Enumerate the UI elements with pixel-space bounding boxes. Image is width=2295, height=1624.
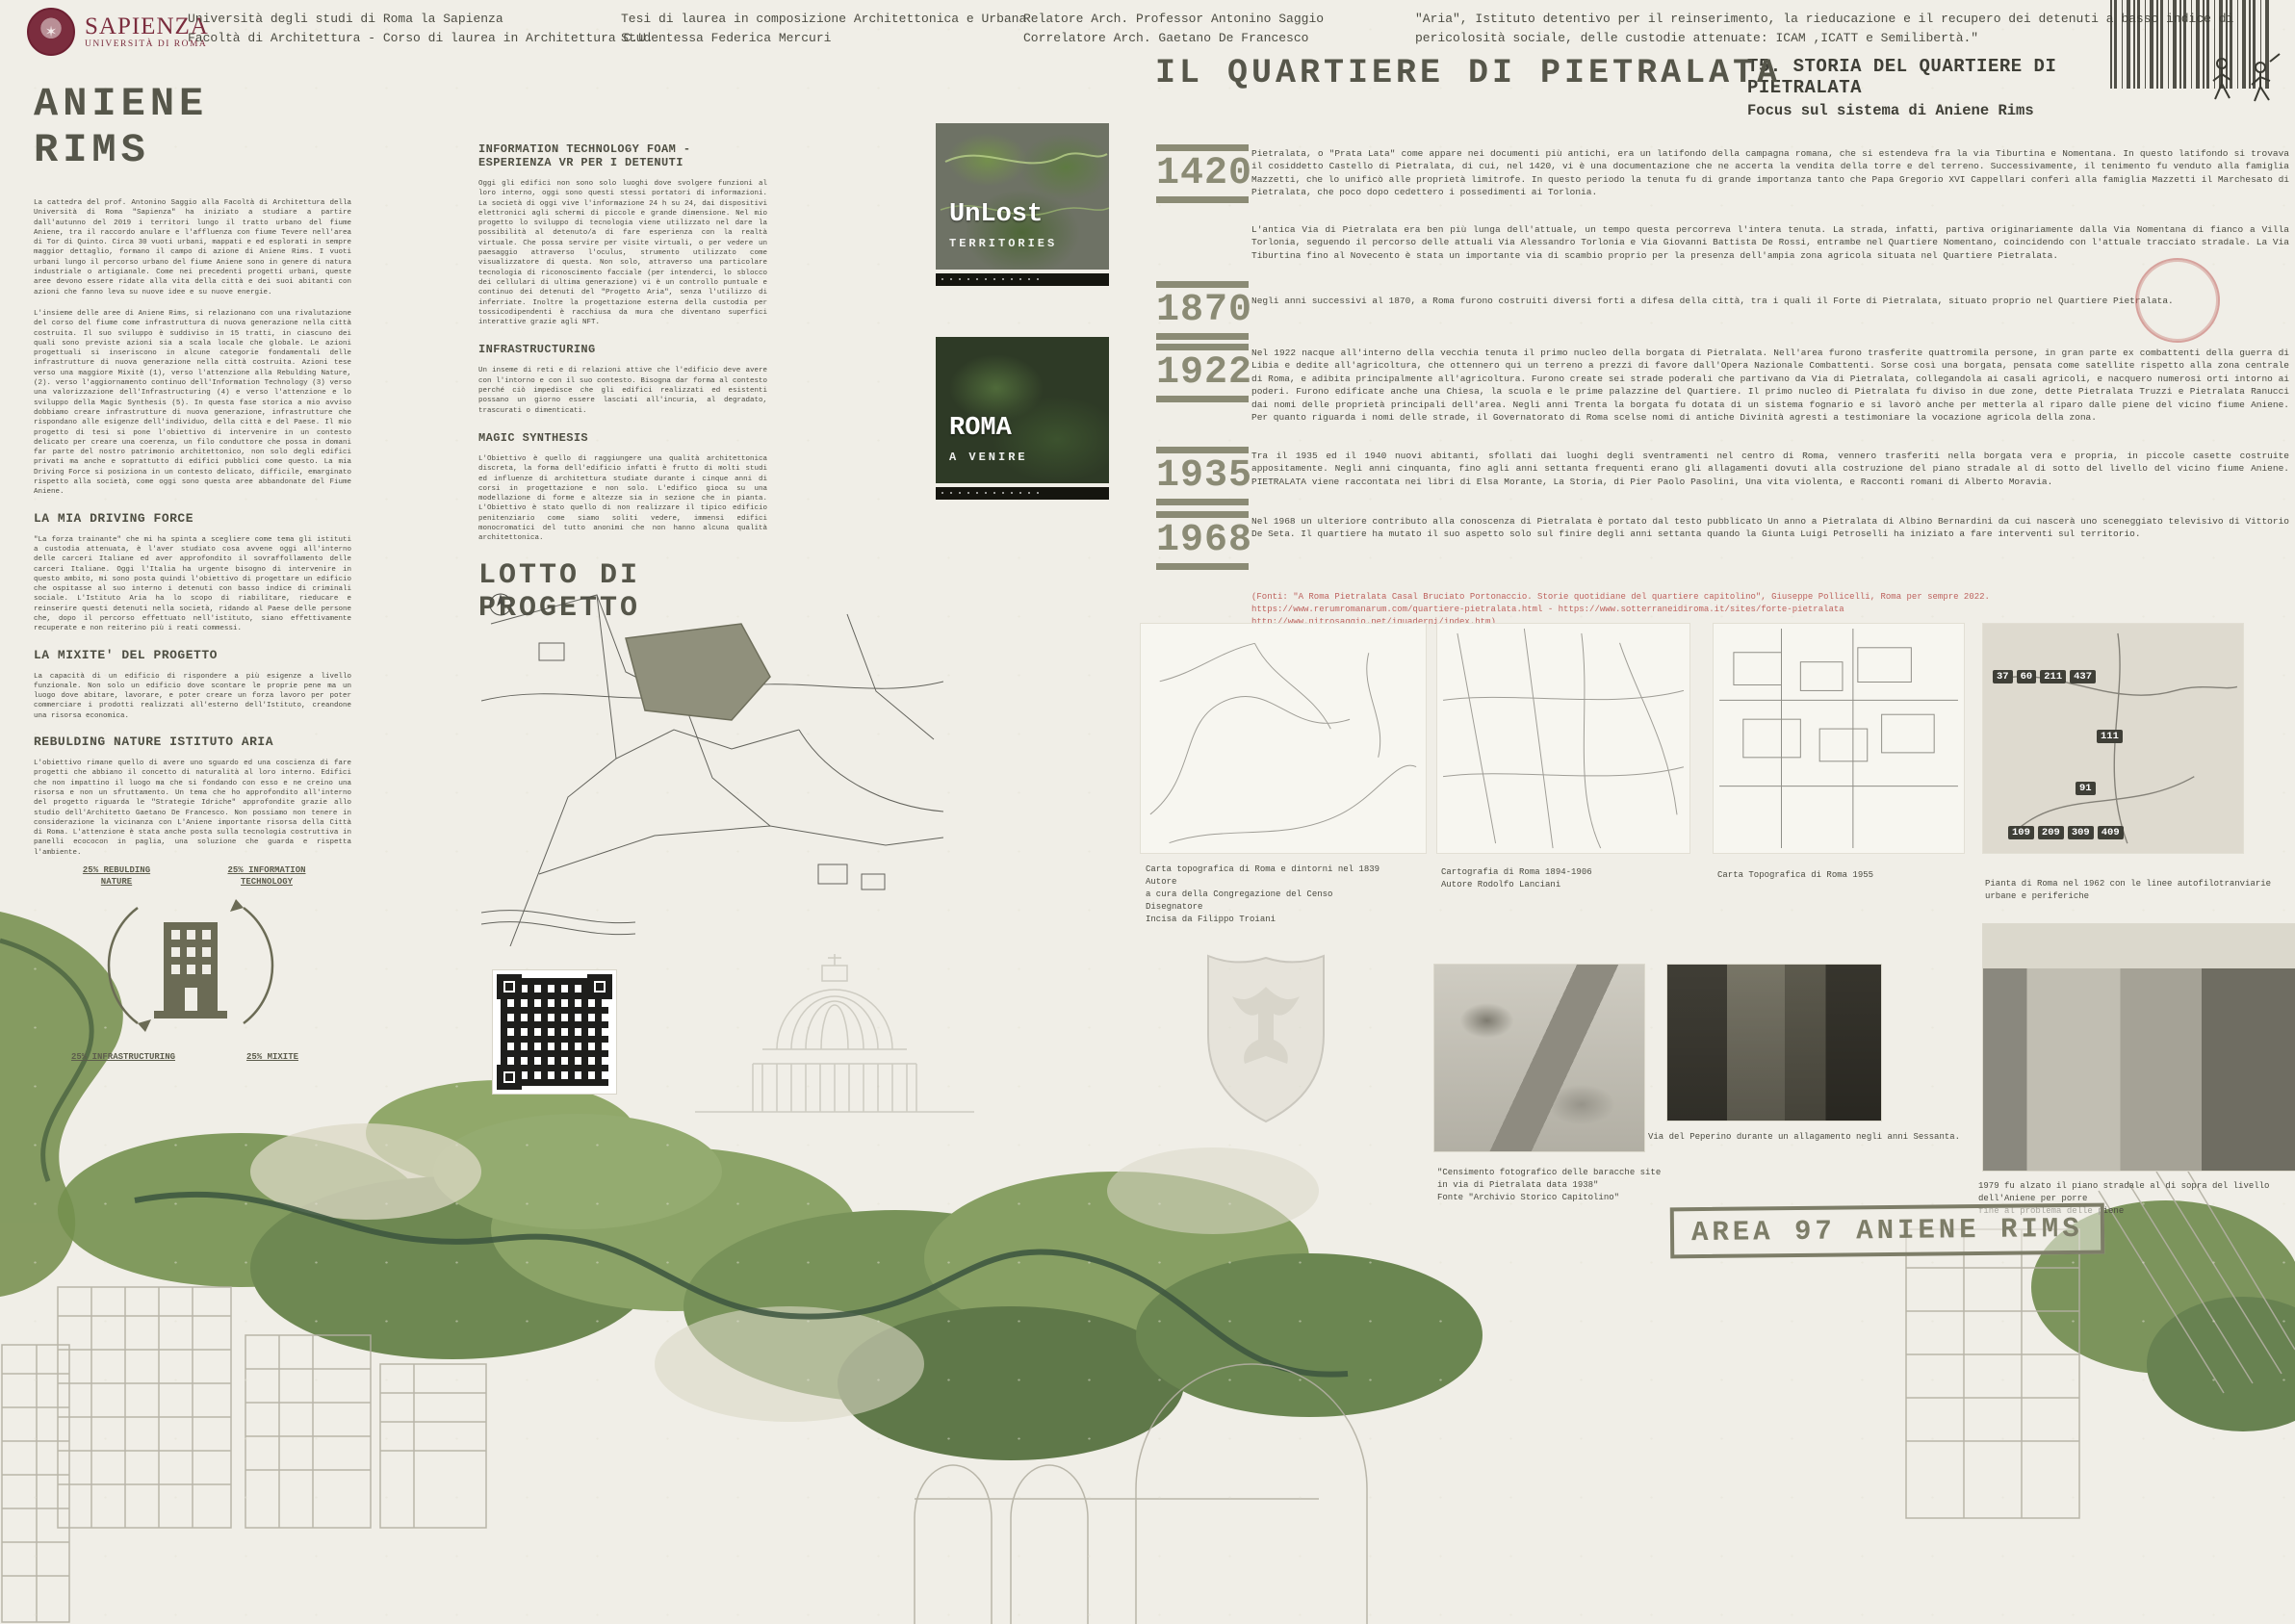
photo-caption-baracche: "Censimento fotografico delle baracche s… <box>1437 1167 1726 1204</box>
year-stamp-1968: 1968 <box>1156 511 1249 570</box>
route-badge: 111 <box>2097 730 2123 743</box>
red-round-stamp <box>2127 250 2228 350</box>
timeline-text-1968: Nel 1968 un ulteriore contributo alla co… <box>1251 515 2289 541</box>
faculty-line: Facoltà di Architettura - Corso di laure… <box>188 29 654 48</box>
map-1839 <box>1141 624 1426 853</box>
unlost-territories-card: UnLost TERRITORIES <box>936 123 1109 270</box>
timeline-text-1922: Nel 1922 nacque all'interno della vecchi… <box>1251 347 2289 424</box>
student-line: Studentessa Federica Mercuri <box>621 29 1026 48</box>
map-caption-1962: Pianta di Roma nel 1962 con le linee aut… <box>1985 878 2293 903</box>
photo-street-1979 <box>1983 924 2295 1171</box>
sapienza-seal-icon: ✶ <box>27 8 75 56</box>
left-column: ANIENE RIMS La cattedra del prof. Antoni… <box>34 81 351 869</box>
photo-via-del-peperino-flood <box>1667 965 1881 1121</box>
map-1894-1906 <box>1437 624 1689 853</box>
route-badge: 209 <box>2038 826 2064 839</box>
thesis-board: ✶ SAPIENZA UNIVERSITÀ DI ROMA Università… <box>0 0 2295 1624</box>
header-thesis-block: Tesi di laurea in composizione Architett… <box>621 10 1026 48</box>
unlost-subtitle: TERRITORIES <box>949 237 1057 250</box>
sapienza-logo: ✶ SAPIENZA UNIVERSITÀ DI ROMA <box>27 8 209 56</box>
sketched-figures-icon <box>2205 50 2291 106</box>
year-stamp-1922: 1922 <box>1156 344 1249 402</box>
body-infrastructuring: Un inseme di reti e di relazioni attive … <box>478 366 767 415</box>
route-badge-91: 91 <box>2076 778 2100 795</box>
heading-infrastructuring: INFRASTRUCTURING <box>478 343 767 356</box>
aniene-intro-paragraph-1: La cattedra del prof. Antonino Saggio al… <box>34 198 351 297</box>
st-peters-dome-sketch <box>695 948 974 1121</box>
heading-driving-force: LA MIA DRIVING FORCE <box>34 511 351 526</box>
aniene-rims-title: ANIENE RIMS <box>34 81 351 173</box>
year-stamp-1935: 1935 <box>1156 447 1249 505</box>
map-caption-1894: Cartografia di Roma 1894-1906 Autore Rod… <box>1441 866 1691 891</box>
roma-title: ROMA <box>949 414 1012 443</box>
heading-mixite: LA MIXITE' DEL PROGETTO <box>34 648 351 662</box>
route-badge: 91 <box>2076 782 2096 795</box>
map-caption-1839: Carta topografica di Roma e dintorni nel… <box>1146 864 1434 926</box>
qr-code <box>493 970 616 1094</box>
diagram-arrows-icon <box>46 864 335 1067</box>
photo-caption-peperino: Via del Peperino durante un allagamento … <box>1648 1131 2014 1144</box>
project-lot-polygon <box>626 624 770 720</box>
roma-caption-strip <box>936 487 1109 500</box>
building-icon <box>154 922 227 1018</box>
body-it-foam: Oggi gli edifici non sono solo luoghi do… <box>478 179 767 327</box>
route-badge: 409 <box>2098 826 2124 839</box>
route-badge: 60 <box>2017 670 2037 683</box>
board-title: T5. STORIA DEL QUARTIERE DI PIETRALATA <box>1747 56 2132 98</box>
coat-of-arms-sketch <box>1199 948 1333 1126</box>
map-1962-transit: 3760211437 111 91 109209309409 <box>1983 624 2243 853</box>
timeline-text-1870: Negli anni successivi al 1870, a Roma fu… <box>1251 295 2289 307</box>
header-university-block: Università degli studi di Roma la Sapien… <box>188 10 654 48</box>
body-magic-synthesis: L'Obiettivo è quello di raggiungere una … <box>478 454 767 544</box>
middle-column: INFORMATION TECHNOLOGY FOAM - ESPERIENZA… <box>478 142 767 625</box>
photo-baracche-1938 <box>1434 965 1644 1151</box>
route-badge: 109 <box>2008 826 2034 839</box>
correlatore-line: Correlatore Arch. Gaetano De Francesco <box>1023 29 1324 48</box>
body-rebuilding-nature: L'obiettivo rimane quello di avere uno s… <box>34 759 351 858</box>
diagram-label-mixite: 25% MIXITE <box>219 1051 325 1063</box>
route-badge: 211 <box>2040 670 2066 683</box>
header-advisor-block: Relatore Arch. Professor Antonino Saggio… <box>1023 10 1324 48</box>
timeline-text-1935: Tra il 1935 ed il 1940 nuovi abitanti, s… <box>1251 450 2289 488</box>
roma-subtitle: A VENIRE <box>949 451 1028 464</box>
university-line: Università degli studi di Roma la Sapien… <box>188 10 654 29</box>
route-badge: 37 <box>1993 670 2013 683</box>
timeline-text-1420: Pietralata, o "Prata Lata" come appare n… <box>1251 147 2289 199</box>
unlost-title: UnLost <box>949 200 1043 229</box>
diagram-label-infrastructuring: 25% INFRASTRUCTURING <box>46 1051 200 1063</box>
map-caption-1955: Carta Topografica di Roma 1955 <box>1717 869 1968 882</box>
unlost-caption-strip <box>936 273 1109 286</box>
heading-it-foam: INFORMATION TECHNOLOGY FOAM - ESPERIENZA… <box>478 142 767 169</box>
diagram-label-rebuilding-nature: 25% REBULDING NATURE <box>64 864 169 888</box>
aniene-intro-paragraph-2: L'insieme delle aree di Aniene Rims, si … <box>34 309 351 498</box>
roma-a-venire-card: ROMA A VENIRE <box>936 337 1109 483</box>
route-badge-111: 111 <box>2097 726 2127 743</box>
heading-rebuilding-nature: REBULDING NATURE ISTITUTO ARIA <box>34 735 351 749</box>
board-subtitle: Focus sul sistema di Aniene Rims <box>1747 102 2132 119</box>
route-badges-row-1: 3760211437 <box>1993 666 2100 683</box>
route-badge: 437 <box>2070 670 2096 683</box>
north-arrow-icon <box>490 594 511 615</box>
relatore-line: Relatore Arch. Professor Antonino Saggio <box>1023 10 1324 29</box>
year-stamp-1870: 1870 <box>1156 281 1249 340</box>
heading-magic-synthesis: MAGIC SYNTHESIS <box>478 431 767 445</box>
route-badge: 309 <box>2068 826 2094 839</box>
body-mixite: La capacità di un edificio di rispondere… <box>34 672 351 721</box>
route-badges-row-2: 109209309409 <box>2008 822 2127 839</box>
timeline-text-1420-extra: L'antica Via di Pietralata era ben più l… <box>1251 223 2289 262</box>
board-title-block: T5. STORIA DEL QUARTIERE DI PIETRALATA F… <box>1747 56 2132 119</box>
area-97-stamp: AREA 97 ANIENE RIMS <box>1670 1203 2104 1259</box>
project-site-map <box>481 585 943 946</box>
year-stamp-1420: 1420 <box>1156 144 1249 203</box>
map-1955 <box>1714 624 1964 853</box>
percentages-diagram: 25% REBULDING NATURE 25% INFORMATION TEC… <box>46 864 335 1067</box>
body-driving-force: "La forza trainante" che mi ha spinta a … <box>34 535 351 634</box>
diagram-label-information-technology: 25% INFORMATION TECHNOLOGY <box>204 864 329 888</box>
pietralata-title: IL QUARTIERE DI PIETRALATA <box>1155 54 1781 92</box>
thesis-line: Tesi di laurea in composizione Architett… <box>621 10 1026 29</box>
